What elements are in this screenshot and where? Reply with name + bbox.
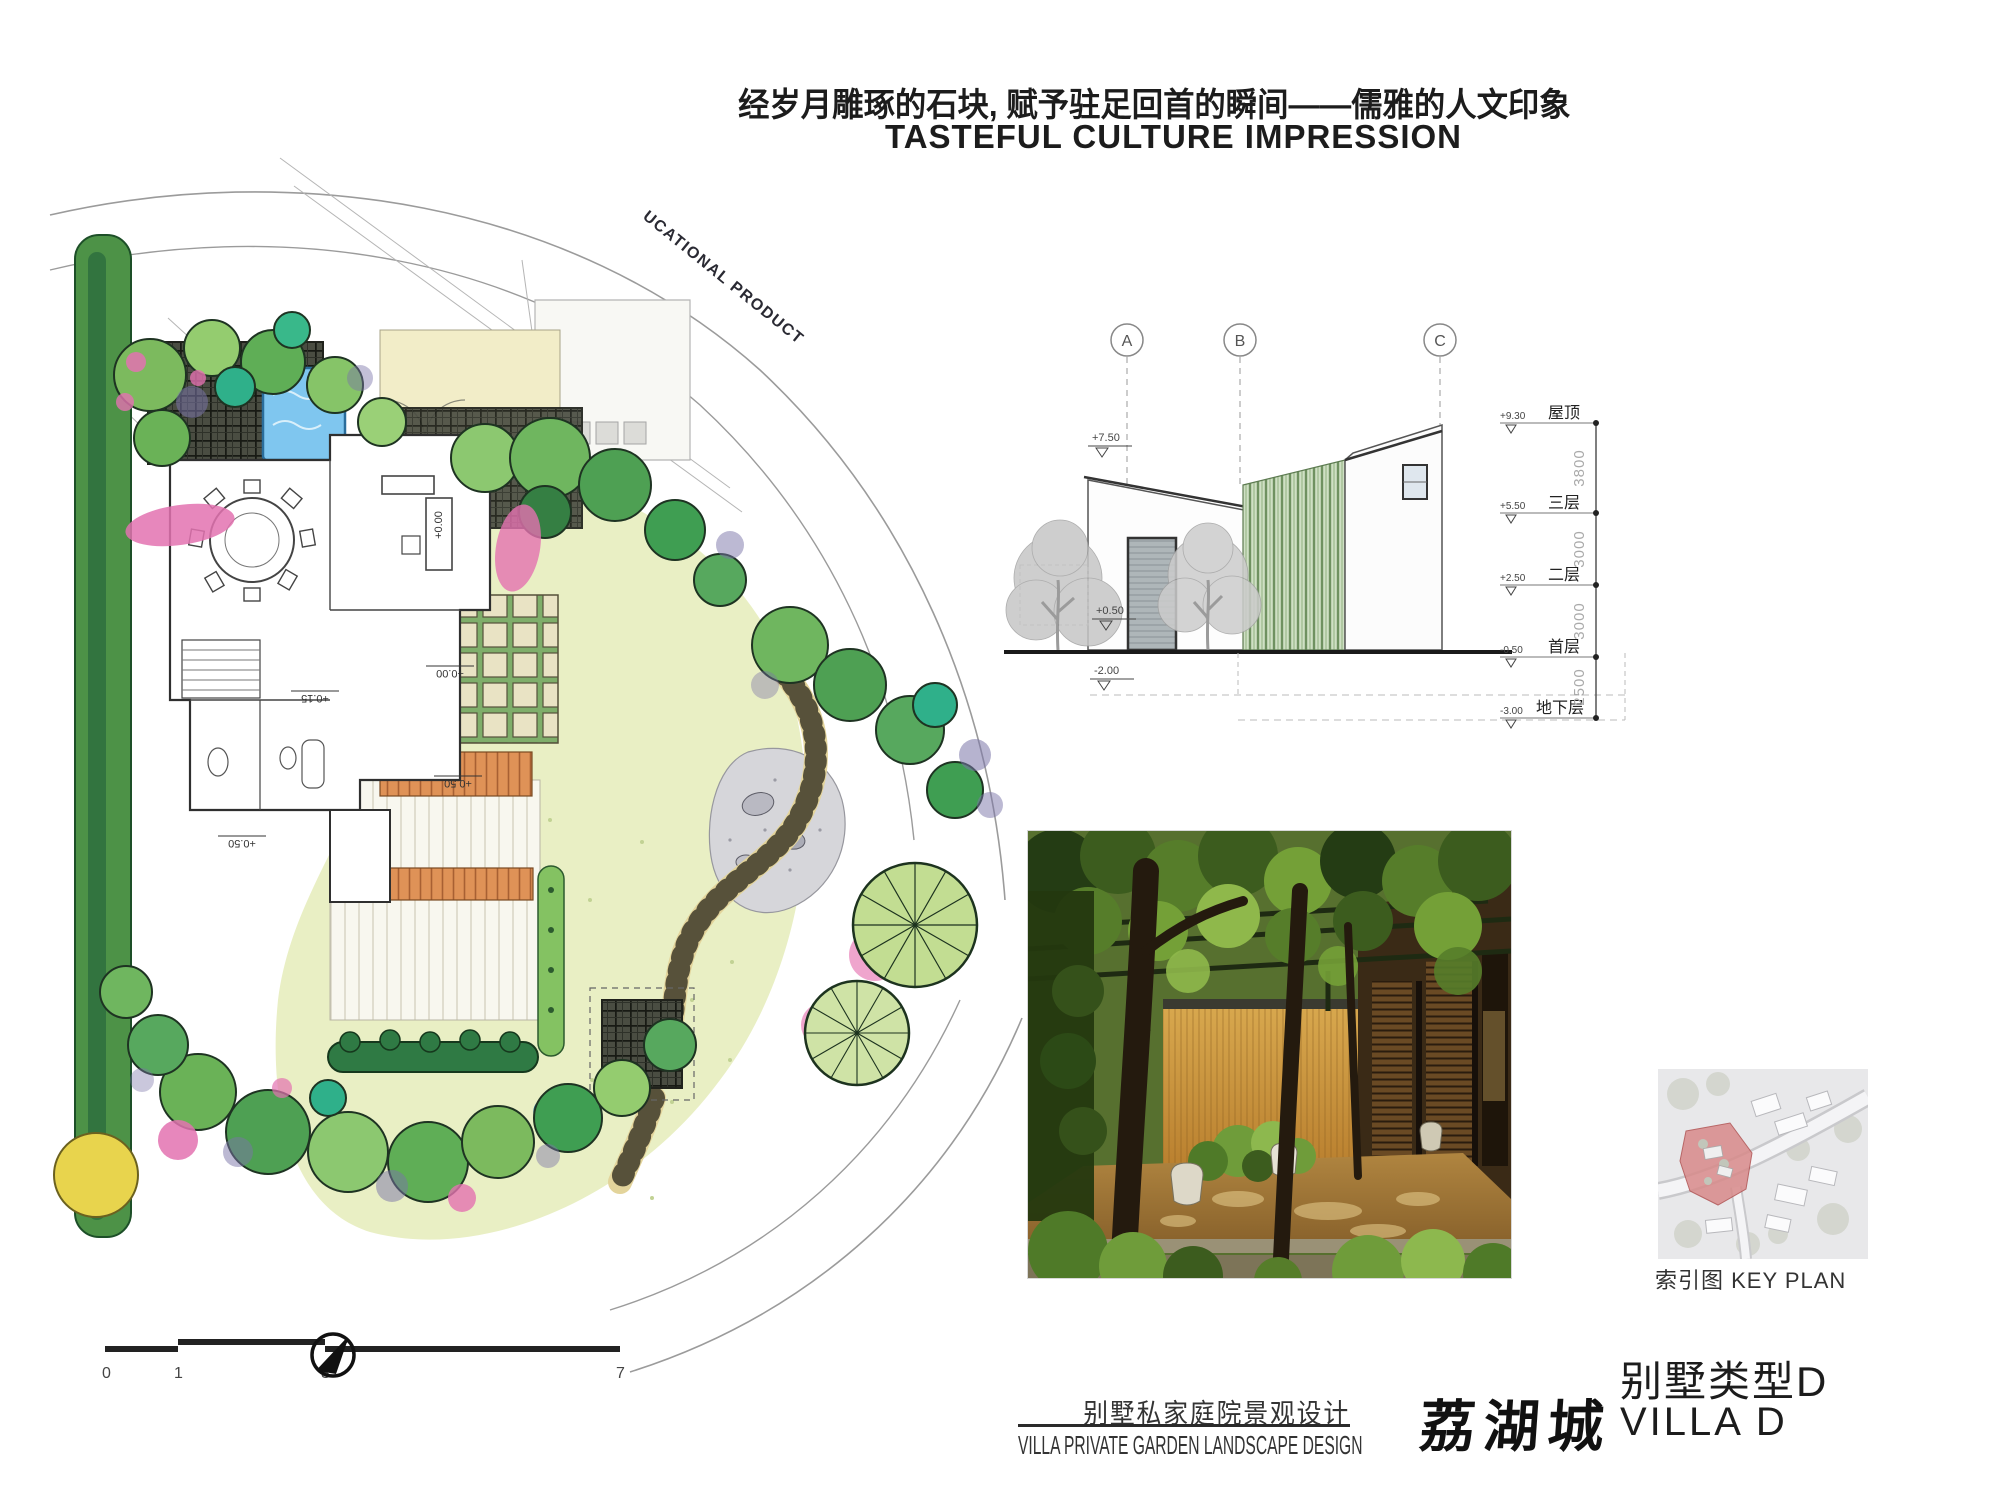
dimension-strip: +9.30 +5.50 +2.50 -0.50 -3.00 屋顶 三层 二层 首… (1500, 404, 1599, 728)
svg-text:+0.00: +0.00 (436, 667, 464, 679)
svg-text:+2.50: +2.50 (1500, 573, 1526, 584)
svg-text:-2.00: -2.00 (1094, 665, 1119, 677)
project-logo: 荔湖城 (1417, 1382, 1653, 1463)
svg-text:B: B (1235, 333, 1246, 350)
svg-text:+0.50: +0.50 (1096, 605, 1124, 617)
svg-text:+7.50: +7.50 (1092, 432, 1120, 444)
svg-text:+5.50: +5.50 (1500, 501, 1526, 512)
svg-text:二层: 二层 (1548, 567, 1580, 584)
svg-text:三层: 三层 (1548, 495, 1580, 512)
elevation-drawing: A B C (1000, 280, 1760, 750)
svg-text:+0.15: +0.15 (301, 692, 329, 704)
svg-text:-3.00: -3.00 (1500, 706, 1523, 717)
svg-text:3000: 3000 (1571, 602, 1588, 639)
svg-text:C: C (1434, 333, 1446, 350)
svg-text:+0.50: +0.50 (444, 777, 472, 789)
footer-divider (1018, 1424, 1350, 1427)
svg-text:+9.30: +9.30 (1500, 411, 1526, 422)
north-arrow-icon (312, 1334, 354, 1376)
svg-text:3800: 3800 (1571, 449, 1588, 486)
svg-text:首层: 首层 (1548, 638, 1580, 656)
project-subtitle-en: VILLA PRIVATE GARDEN LANDSCAPE DESIGN (1018, 1430, 1217, 1461)
svg-text:3000: 3000 (1571, 530, 1588, 567)
courtyard-photo (1027, 830, 1512, 1279)
svg-text:+0.50: +0.50 (228, 837, 256, 849)
master-plan-drawing: UCATIONAL PRODUCT (30, 140, 1030, 1400)
wood-deck-lower (373, 868, 533, 900)
key-plan-label: 索引图 KEY PLAN (1655, 1263, 1915, 1295)
scale-bar: 0 1 3 7 (102, 1339, 625, 1382)
svg-text:A: A (1122, 333, 1133, 350)
ground-lines (1004, 652, 1625, 720)
presentation-sheet: 经岁月雕琢的石块, 赋予驻足回首的瞬间——儒雅的人文印象 TASTEFUL CU… (0, 0, 2000, 1500)
svg-text:0: 0 (102, 1365, 111, 1382)
svg-text:-0.50: -0.50 (1500, 645, 1523, 656)
svg-text:2500: 2500 (1571, 668, 1588, 705)
villa-type-en: VILLA D (1620, 1400, 1880, 1445)
svg-text:+0.00: +0.00 (433, 511, 445, 539)
svg-text:屋顶: 屋顶 (1548, 404, 1580, 422)
shrub-hedge-column (538, 866, 564, 1056)
svg-text:7: 7 (616, 1365, 625, 1382)
key-plan-image (1658, 1069, 1868, 1259)
fan-trees (801, 863, 977, 1085)
svg-text:1: 1 (174, 1365, 183, 1382)
